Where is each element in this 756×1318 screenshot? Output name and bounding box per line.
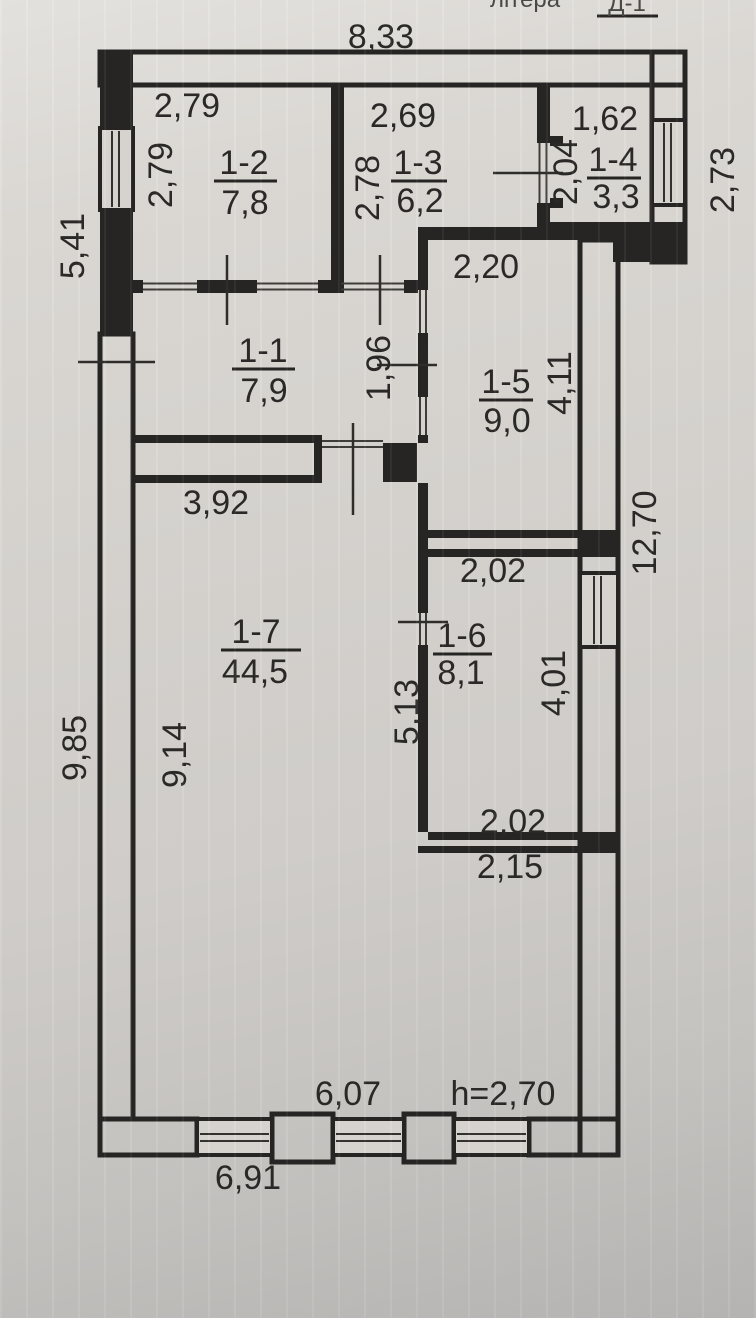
wall-bottom-pier-2 xyxy=(404,1114,454,1162)
window-bottom-1 xyxy=(197,1119,272,1155)
litera-label: літера xyxy=(490,0,561,13)
room-1-1-dim-inner: 1,96 xyxy=(360,335,398,401)
labels: літера Д-1 8,33 2,79 2,69 1,62 2,79 2,78… xyxy=(54,0,742,1197)
room-1-6-area: 8,1 xyxy=(437,654,484,692)
room-1-7-area: 44,5 xyxy=(222,653,288,691)
window-right-main xyxy=(580,573,618,647)
room-1-4-dim-top: 1,62 xyxy=(572,100,638,138)
wall-bottom-left xyxy=(100,1119,197,1155)
wall-passage-block xyxy=(383,443,417,482)
floor-plan-svg: літера Д-1 8,33 2,79 2,69 1,62 2,79 2,78… xyxy=(0,0,756,1318)
room-1-2-id: 1-2 xyxy=(219,144,268,182)
room-1-6-dim-right: 4,01 xyxy=(535,650,573,716)
room-1-6-dim-below: 2,15 xyxy=(477,848,543,886)
wall-1-5-top xyxy=(418,227,580,240)
dim-bottom-outer: 6,91 xyxy=(215,1159,281,1197)
dim-left-lower: 9,85 xyxy=(56,715,94,781)
room-1-4-id: 1-4 xyxy=(588,141,637,179)
room-1-1-area: 7,9 xyxy=(240,372,287,410)
wall-top xyxy=(100,52,685,85)
wall-left-top xyxy=(100,52,133,128)
wall-1-1-bottom xyxy=(133,435,318,443)
dim-right-upper: 2,73 xyxy=(704,147,742,213)
room-1-2-area: 7,8 xyxy=(221,184,268,222)
wall-1-7-top xyxy=(133,475,322,483)
wall-1-3-1-4-a xyxy=(537,83,550,143)
wall-h1-c xyxy=(318,280,337,293)
wall-right-joint-1 xyxy=(580,530,618,557)
wall-1-5-left-a xyxy=(418,240,428,290)
wall-right-joint-2 xyxy=(580,832,618,853)
room-1-7-id: 1-7 xyxy=(231,613,280,651)
room-1-5-dim-right: 4,11 xyxy=(541,351,579,415)
room-1-5-dim-top: 2,20 xyxy=(453,248,519,286)
wall-bottom-pier-1 xyxy=(272,1114,333,1162)
room-1-1-id: 1-1 xyxy=(238,332,287,370)
dim-top: 8,33 xyxy=(348,18,414,56)
room-1-3-dim-top: 2,69 xyxy=(370,97,436,135)
dim-right-main: 12,70 xyxy=(626,490,664,575)
room-1-6-dim-bottom: 2,02 xyxy=(480,803,546,841)
wall-right-main xyxy=(580,240,618,1155)
litera-value: Д-1 xyxy=(608,0,646,17)
dim-left-upper: 5,41 xyxy=(54,213,92,279)
room-1-4-dim-left: 2,04 xyxy=(547,139,585,205)
room-1-3-dim-left: 2,78 xyxy=(349,155,387,221)
window-bottom-3 xyxy=(454,1119,529,1155)
wall-left-mid xyxy=(100,210,133,334)
wall-1-5-bottom xyxy=(424,530,580,538)
room-1-4-area: 3,3 xyxy=(592,178,639,216)
wall-left-lower xyxy=(100,334,133,1119)
room-1-6-dim-left: 5,13 xyxy=(388,679,426,745)
room-1-5-id: 1-5 xyxy=(481,363,530,401)
window-left xyxy=(100,128,133,210)
window-right-1-4 xyxy=(652,120,685,205)
wall-1-2-1-3 xyxy=(331,83,344,293)
room-1-3-id: 1-3 xyxy=(393,144,442,182)
wall-bottom-right xyxy=(529,1119,618,1155)
room-1-2-dim-top: 2,79 xyxy=(154,87,220,125)
ceiling-height: h=2,70 xyxy=(451,1075,556,1113)
room-1-7-dim-left: 9,14 xyxy=(156,722,194,788)
room-1-2-dim-left: 2,79 xyxy=(142,142,180,208)
wall-1-5-left-c xyxy=(418,435,428,443)
wall-h1-a xyxy=(133,280,143,293)
windows xyxy=(100,120,685,1155)
room-1-7-dim-bottom: 6,07 xyxy=(315,1075,381,1113)
floor-plan-photo: літера Д-1 8,33 2,79 2,69 1,62 2,79 2,78… xyxy=(0,0,756,1318)
room-1-5-area: 9,0 xyxy=(483,402,530,440)
room-1-7-dim-top: 3,92 xyxy=(183,484,249,522)
wall-1-6-left-a xyxy=(418,483,428,613)
room-1-3-area: 6,2 xyxy=(396,182,443,220)
wall-step-right xyxy=(613,240,685,262)
room-1-6-id: 1-6 xyxy=(437,617,486,655)
wall-h1-d xyxy=(404,280,418,293)
window-bottom-2 xyxy=(333,1119,404,1155)
room-1-6-dim-top: 2,02 xyxy=(460,552,526,590)
